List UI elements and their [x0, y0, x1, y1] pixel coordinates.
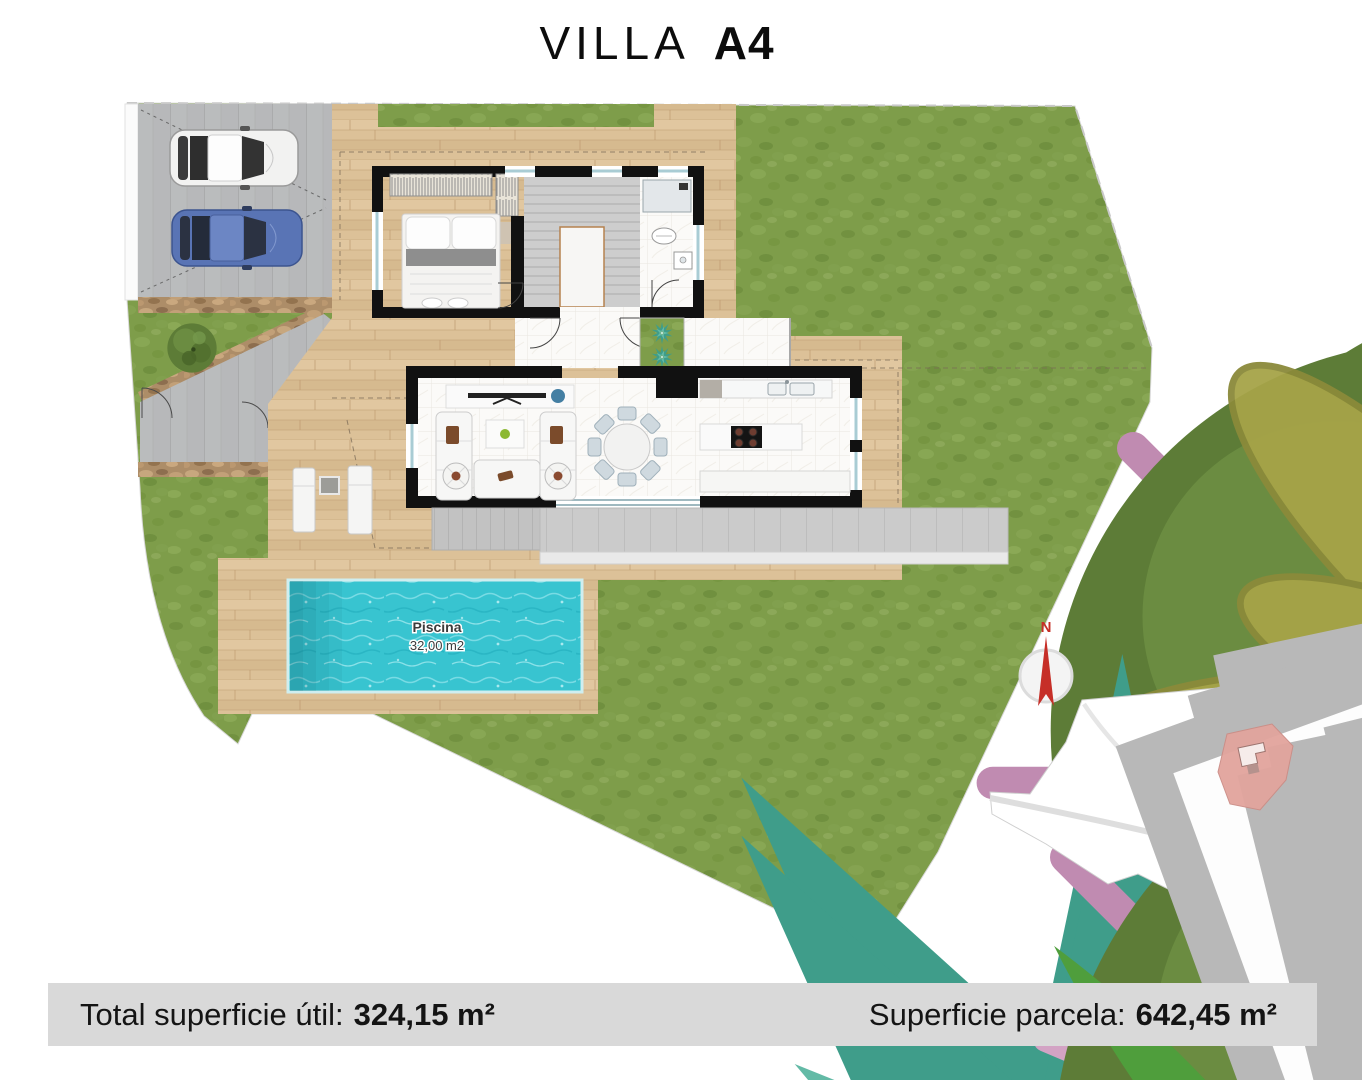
plot-area: Superficie parcela:642,45 m²	[869, 997, 1277, 1033]
sink	[768, 383, 786, 395]
site-plan-drawing: Piscina 32,00 m2	[0, 0, 1362, 1080]
pillow	[406, 217, 450, 249]
bed	[402, 214, 500, 308]
sun-lounger	[293, 468, 315, 532]
pillow	[452, 217, 496, 249]
tv	[468, 393, 546, 398]
plot-area-label: Superficie parcela:	[869, 997, 1126, 1032]
stone-wall-top	[138, 297, 334, 313]
parking-area	[125, 104, 332, 300]
cushion	[550, 426, 563, 444]
pool-label-name: Piscina	[412, 619, 461, 635]
living-block	[406, 366, 862, 508]
total-useful-area: Total superficie útil:324,15 m²	[80, 997, 495, 1033]
kitchen-wall-stub	[656, 378, 698, 398]
shower-head	[679, 183, 688, 190]
pool-steps	[290, 581, 303, 691]
closet	[496, 174, 518, 216]
blue-car	[172, 206, 302, 270]
bathroom	[640, 177, 693, 307]
armchair	[443, 463, 469, 489]
useful-area-label: Total superficie útil:	[80, 997, 344, 1032]
sun-lounger	[348, 466, 372, 534]
planter	[640, 318, 684, 370]
car-rear-glass	[180, 216, 190, 260]
useful-area-value: 324,15 m²	[354, 997, 495, 1032]
decor-bowl	[551, 389, 565, 403]
bush-icon	[167, 323, 216, 372]
stair-void	[560, 227, 604, 307]
terrace-edge	[540, 552, 1008, 564]
armchair	[545, 463, 571, 489]
summary-bar: Total superficie útil:324,15 m² Superfic…	[48, 983, 1317, 1046]
living-room	[436, 385, 576, 500]
white-car	[170, 126, 298, 190]
parking-side-strip	[125, 104, 138, 300]
bedroom-block	[372, 166, 704, 318]
terrace-steps	[432, 508, 540, 550]
inner-wall	[511, 216, 524, 307]
cushion	[446, 426, 459, 444]
pool-label-area: 32,00 m2	[410, 638, 464, 653]
north-label: N	[1041, 619, 1052, 636]
bed-runner	[406, 249, 496, 266]
plot-area-value: 642,45 m²	[1136, 997, 1277, 1032]
car-windshield	[242, 136, 264, 180]
terrace-floor	[540, 508, 1008, 554]
wall-bottom-right	[700, 496, 862, 508]
side-table	[320, 477, 339, 494]
wall-top-right	[618, 366, 862, 378]
decor-fruit	[500, 429, 510, 439]
faucet	[785, 380, 789, 384]
car-windshield	[244, 216, 266, 260]
kitchen-counter-low	[700, 471, 850, 492]
sink	[790, 383, 814, 395]
swimming-pool: Piscina 32,00 m2	[288, 580, 582, 692]
car-rear-glass	[178, 136, 188, 180]
appliance	[700, 380, 722, 398]
villa-plan-page: VILLAA4	[0, 0, 1362, 1080]
wardrobe	[390, 174, 492, 196]
grass-strip-top	[378, 104, 654, 127]
wall-top-left	[406, 366, 562, 378]
dining-table	[604, 424, 650, 470]
